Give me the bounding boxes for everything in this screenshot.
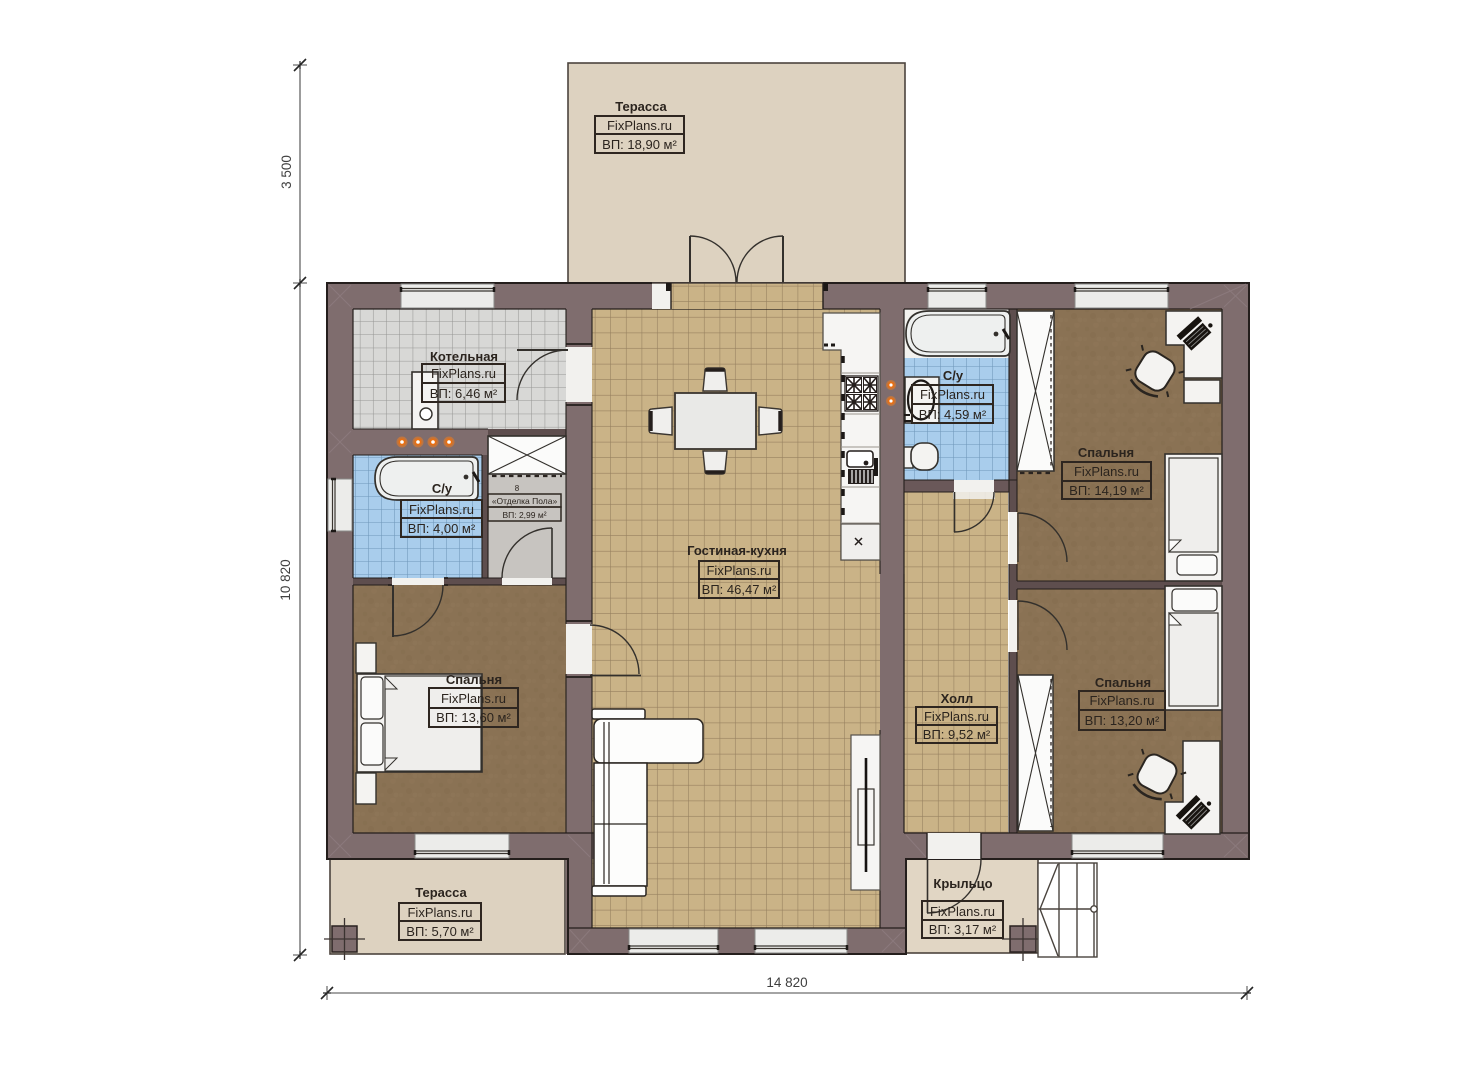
svg-text:ВП: 3,17 м²: ВП: 3,17 м²: [929, 922, 997, 937]
svg-text:ВП: 14,19 м²: ВП: 14,19 м²: [1069, 483, 1144, 498]
svg-text:Холл: Холл: [941, 691, 974, 706]
svg-text:«Отделка Пола»: «Отделка Пола»: [492, 496, 558, 506]
svg-text:ВП: 4,00 м²: ВП: 4,00 м²: [408, 521, 476, 536]
svg-text:Спальня: Спальня: [1095, 675, 1151, 690]
svg-text:ВП: 4,59 м²: ВП: 4,59 м²: [919, 407, 987, 422]
svg-text:FixPlans.ru: FixPlans.ru: [407, 905, 472, 920]
svg-text:Терасса: Терасса: [615, 99, 667, 114]
svg-text:Гостиная-кухня: Гостиная-кухня: [687, 543, 787, 558]
svg-text:Спальня: Спальня: [1078, 445, 1134, 460]
svg-text:14 820: 14 820: [766, 975, 807, 990]
svg-text:ВП: 2,99 м²: ВП: 2,99 м²: [502, 510, 546, 520]
svg-text:ВП: 5,70 м²: ВП: 5,70 м²: [406, 924, 474, 939]
svg-text:Терасса: Терасса: [415, 885, 467, 900]
svg-text:10 820: 10 820: [278, 559, 293, 600]
svg-text:FixPlans.ru: FixPlans.ru: [441, 691, 506, 706]
svg-text:FixPlans.ru: FixPlans.ru: [409, 502, 474, 517]
svg-text:ВП: 6,46 м²: ВП: 6,46 м²: [430, 386, 498, 401]
svg-text:8: 8: [515, 484, 520, 493]
svg-text:FixPlans.ru: FixPlans.ru: [920, 387, 985, 402]
svg-text:ВП: 18,90 м²: ВП: 18,90 м²: [602, 137, 677, 152]
svg-text:FixPlans.ru: FixPlans.ru: [607, 118, 672, 133]
svg-text:FixPlans.ru: FixPlans.ru: [930, 904, 995, 919]
svg-text:Крыльцо: Крыльцо: [933, 876, 992, 891]
svg-text:С/у: С/у: [943, 368, 964, 383]
svg-text:ВП: 13,60 м²: ВП: 13,60 м²: [436, 710, 511, 725]
svg-text:Котельная: Котельная: [430, 349, 498, 364]
svg-text:FixPlans.ru: FixPlans.ru: [431, 366, 496, 381]
svg-text:С/у: С/у: [432, 481, 453, 496]
svg-text:FixPlans.ru: FixPlans.ru: [924, 709, 989, 724]
svg-text:3 500: 3 500: [279, 155, 294, 189]
svg-text:Спальня: Спальня: [446, 672, 502, 687]
svg-text:ВП: 46,47 м²: ВП: 46,47 м²: [702, 582, 777, 597]
svg-text:FixPlans.ru: FixPlans.ru: [706, 563, 771, 578]
svg-text:FixPlans.ru: FixPlans.ru: [1074, 464, 1139, 479]
svg-text:ВП: 13,20 м²: ВП: 13,20 м²: [1085, 713, 1160, 728]
svg-text:FixPlans.ru: FixPlans.ru: [1089, 693, 1154, 708]
svg-text:ВП: 9,52 м²: ВП: 9,52 м²: [923, 727, 991, 742]
